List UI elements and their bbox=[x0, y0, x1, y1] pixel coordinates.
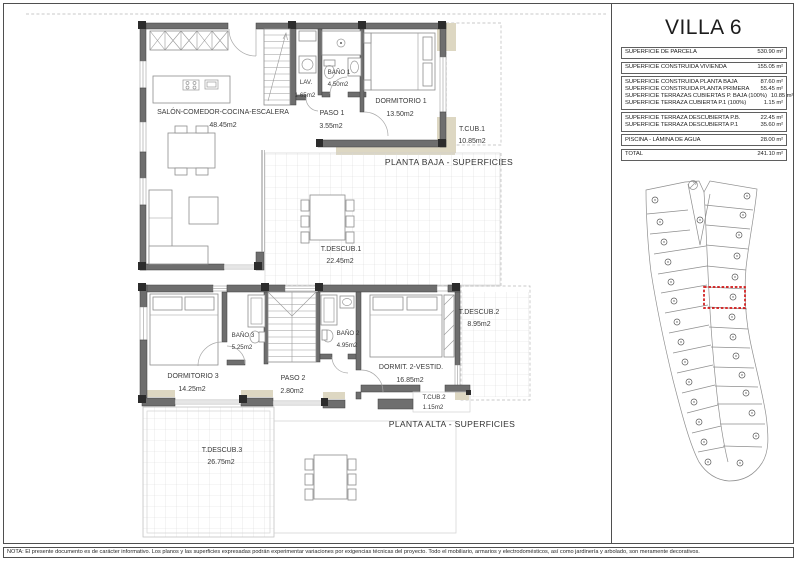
svg-text:14.25m2: 14.25m2 bbox=[178, 386, 205, 393]
surface-table: SUPERFICIE DE PARCELA530.90 m² SUPERFICI… bbox=[621, 47, 787, 161]
kitchen-island bbox=[153, 76, 230, 103]
room-label-dormitorio2: DORMIT. 2-VESTID. 16.85m2 bbox=[379, 364, 443, 384]
site-plan-outline bbox=[646, 181, 768, 481]
svg-text:8.95m2: 8.95m2 bbox=[467, 321, 490, 328]
villa-title: VILLA 6 bbox=[612, 16, 795, 40]
staircase-baja bbox=[264, 29, 290, 105]
room-label-tcub1: T.CUB.1 10.85m2 bbox=[458, 126, 485, 145]
table-row: SUPERFICIE TERRAZA DESCUBIERTA P.135.60 … bbox=[622, 122, 786, 129]
site-plan bbox=[612, 175, 797, 545]
svg-text:T.DESCUB.2: T.DESCUB.2 bbox=[459, 309, 500, 316]
svg-text:1.15m2: 1.15m2 bbox=[423, 404, 444, 411]
coffee-table bbox=[189, 197, 218, 224]
table-row: PISCINA - LÁMINA DE AGUA28.00 m² bbox=[622, 137, 786, 144]
svg-text:PASO 2: PASO 2 bbox=[281, 375, 306, 382]
svg-text:T.DESCUB.1: T.DESCUB.1 bbox=[321, 246, 362, 253]
svg-text:LAV.: LAV. bbox=[300, 79, 313, 86]
svg-text:4.50m2: 4.50m2 bbox=[328, 81, 349, 88]
entrance-door bbox=[229, 29, 256, 56]
svg-text:PASO 1: PASO 1 bbox=[320, 110, 345, 117]
table-row: SUPERFICIE CONSTRUIDA PLANTA BAJA87.60 m… bbox=[622, 79, 786, 86]
floor-plan-planta-alta: DORMITORIO 3 14.25m2 BAÑO 3 5.25m2 PASO … bbox=[138, 283, 530, 537]
bathroom3-fixtures bbox=[227, 295, 265, 364]
table-row: SUPERFICIE TERRAZA DESCUBIERTA P.B.22.45… bbox=[622, 115, 786, 122]
table-group: SUPERFICIE TERRAZA DESCUBIERTA P.B.22.45… bbox=[621, 112, 787, 131]
svg-text:48.45m2: 48.45m2 bbox=[209, 122, 236, 129]
svg-text:5.25m2: 5.25m2 bbox=[232, 344, 253, 351]
dining-table bbox=[168, 126, 215, 175]
table-row: TOTAL241.10 m² bbox=[622, 151, 786, 158]
room-label-tcub2: T.CUB.2 1.15m2 bbox=[422, 394, 446, 411]
floor-plan-planta-baja: SALÓN-COMEDOR-COCINA-ESCALERA 48.45m2 LA… bbox=[26, 14, 606, 286]
plan-title-alta: PLANTA ALTA - SUPERFICIES bbox=[389, 419, 515, 429]
terrace-table-alta bbox=[305, 455, 356, 500]
svg-text:26.75m2: 26.75m2 bbox=[207, 459, 234, 466]
bed-dormitorio1 bbox=[364, 33, 435, 136]
table-row: SUPERFICIE CONSTRUIDA PLANTA PRIMERA55.4… bbox=[622, 86, 786, 93]
document-sheet: SALÓN-COMEDOR-COCINA-ESCALERA 48.45m2 LA… bbox=[0, 0, 799, 565]
kitchen-cabinets bbox=[150, 31, 228, 50]
room-label-dormitorio1: DORMITORIO 1 13.50m2 bbox=[375, 98, 426, 118]
room-label-lav: LAV. 1.65m2 bbox=[295, 79, 316, 99]
selected-plot-highlight bbox=[704, 287, 745, 308]
right-panel: VILLA 6 SUPERFICIE DE PARCELA530.90 m² S… bbox=[612, 3, 795, 544]
table-group: SUPERFICIE CONSTRUIDA PLANTA BAJA87.60 m… bbox=[621, 76, 787, 110]
svg-text:2.80m2: 2.80m2 bbox=[280, 388, 303, 395]
staircase-alta bbox=[268, 292, 316, 362]
svg-text:T.DESCUB.3: T.DESCUB.3 bbox=[202, 447, 243, 454]
room-label-dormitorio3: DORMITORIO 3 14.25m2 bbox=[167, 373, 218, 393]
floor-plans: SALÓN-COMEDOR-COCINA-ESCALERA 48.45m2 LA… bbox=[0, 0, 612, 545]
plot-markers bbox=[652, 193, 759, 466]
svg-text:4.95m2: 4.95m2 bbox=[337, 342, 358, 349]
svg-text:10.85m2: 10.85m2 bbox=[458, 138, 485, 145]
table-row: SUPERFICIE CONSTRUIDA VIVIENDA155.05 m² bbox=[622, 64, 786, 71]
svg-text:1.65m2: 1.65m2 bbox=[295, 92, 316, 99]
svg-text:SALÓN-COMEDOR-COCINA-ESCALERA: SALÓN-COMEDOR-COCINA-ESCALERA bbox=[157, 107, 289, 116]
footer-note: NOTA: El presente documento es de caráct… bbox=[7, 549, 700, 555]
svg-text:T.CUB.1: T.CUB.1 bbox=[459, 126, 485, 133]
svg-text:13.50m2: 13.50m2 bbox=[386, 111, 413, 118]
svg-text:22.45m2: 22.45m2 bbox=[326, 258, 353, 265]
bed-dormitorio3 bbox=[150, 294, 222, 366]
svg-text:3.55m2: 3.55m2 bbox=[319, 123, 342, 130]
terrace-table-baja bbox=[301, 195, 354, 243]
table-row: SUPERFICIE TERRAZAS CUBIERTAS P. BAJA (1… bbox=[622, 93, 786, 100]
svg-text:16.85m2: 16.85m2 bbox=[396, 377, 423, 384]
table-row: SUPERFICIE DE PARCELA530.90 m² bbox=[622, 49, 786, 56]
svg-text:DORMIT. 2-VESTID.: DORMIT. 2-VESTID. bbox=[379, 364, 443, 371]
svg-text:DORMITORIO 1: DORMITORIO 1 bbox=[375, 98, 426, 105]
room-label-paso1: PASO 1 3.55m2 bbox=[319, 110, 344, 130]
table-row: SUPERFICIE TERRAZA CUBIERTA P.1 (100%)1.… bbox=[622, 100, 786, 107]
table-group: PISCINA - LÁMINA DE AGUA28.00 m² bbox=[621, 134, 787, 146]
table-group-total: TOTAL241.10 m² bbox=[621, 149, 787, 161]
plan-title-baja: PLANTA BAJA - SUPERFICIES bbox=[385, 157, 513, 167]
terrace-tiles-descub1 bbox=[265, 153, 500, 285]
terrace-tiles-descub2 bbox=[461, 292, 530, 397]
terrace-tiles-descub3 bbox=[143, 407, 274, 537]
svg-text:BAÑO 3: BAÑO 3 bbox=[232, 332, 255, 339]
footer-note-bar: NOTA: El presente documento es de caráct… bbox=[3, 547, 794, 558]
table-group: SUPERFICIE CONSTRUIDA VIVIENDA155.05 m² bbox=[621, 62, 787, 74]
svg-text:BAÑO 2: BAÑO 2 bbox=[337, 330, 360, 337]
room-label-paso2: PASO 2 2.80m2 bbox=[280, 375, 305, 395]
table-group: SUPERFICIE DE PARCELA530.90 m² bbox=[621, 47, 787, 59]
svg-text:DORMITORIO 3: DORMITORIO 3 bbox=[167, 373, 218, 380]
svg-text:T.CUB.2: T.CUB.2 bbox=[422, 394, 446, 401]
svg-text:BAÑO 1: BAÑO 1 bbox=[328, 69, 351, 76]
